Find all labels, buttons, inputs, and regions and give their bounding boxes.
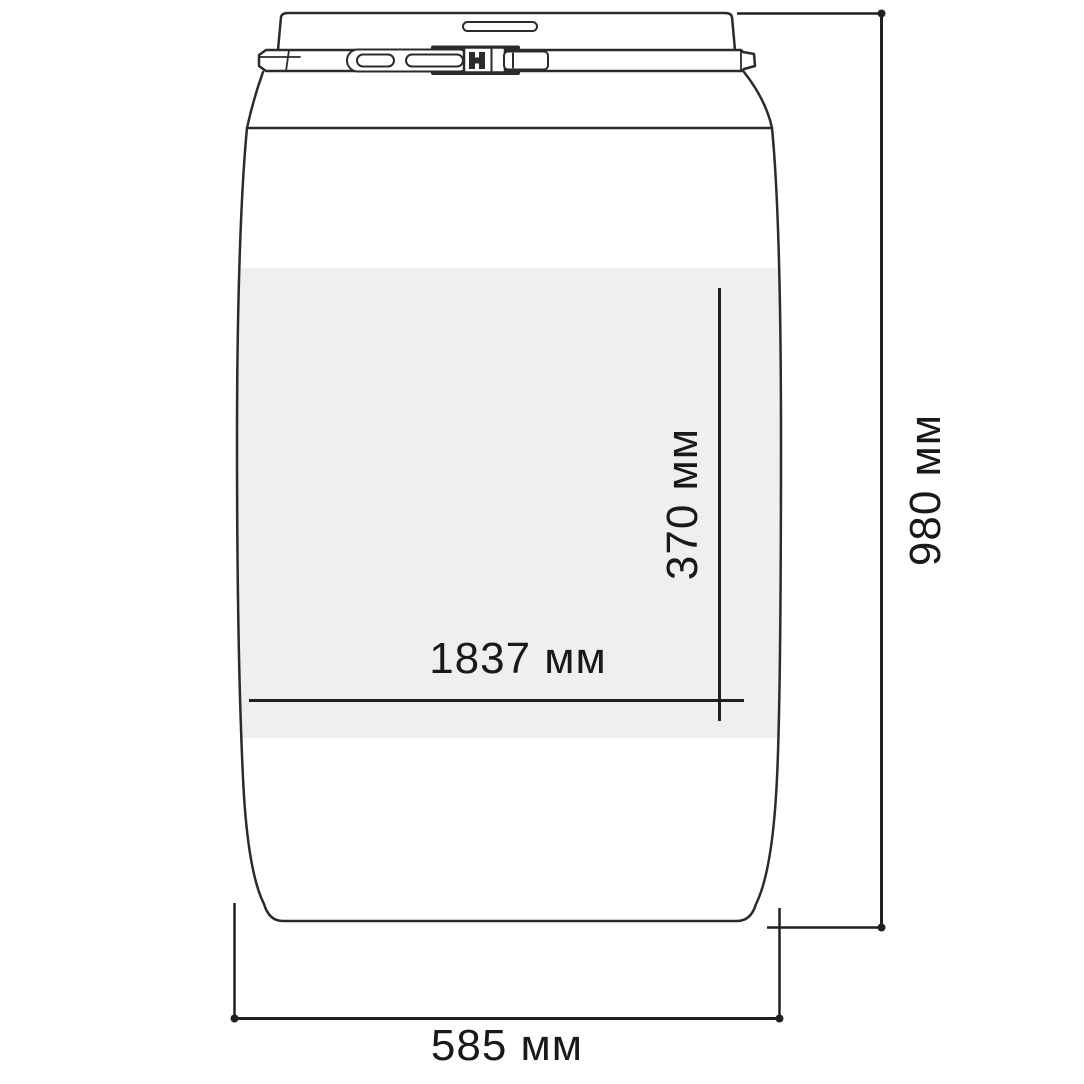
lid-handle-slot (463, 22, 537, 31)
dim-dot-width-right (776, 1015, 784, 1023)
dim-dot-width-left (231, 1015, 239, 1023)
label-total-width: 585 мм (327, 1018, 687, 1074)
latch-tongue (504, 52, 548, 70)
label-band-height: 370 мм (655, 384, 711, 624)
latch-plate (347, 50, 470, 72)
label-band-length: 1837 мм (338, 631, 698, 687)
diagram-canvas: 1837 мм 370 мм 980 мм 585 мм (0, 0, 1084, 1084)
dim-dot-height-top (878, 10, 886, 18)
barrel-neck-right (744, 72, 772, 128)
dim-dot-height-bottom (878, 924, 886, 932)
label-total-height: 980 мм (898, 370, 954, 610)
latch-buckle-bar-mid (469, 58, 485, 64)
barrel-neck-left (247, 72, 263, 128)
